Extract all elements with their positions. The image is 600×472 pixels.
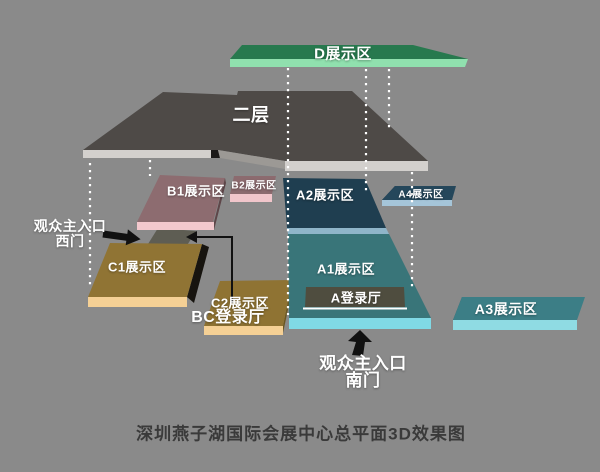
area-label-second-floor: 二层 [233, 101, 270, 127]
area-label-a3: A3展示区 [475, 299, 537, 319]
area-b1-front-edge [137, 222, 214, 230]
second-floor-right-front-edge [285, 161, 428, 171]
area-label-d: D展示区 [314, 43, 372, 64]
area-label-b1: B1展示区 [167, 181, 225, 200]
south-entrance-line1: 观众主入口 [319, 355, 407, 372]
area-a1-front-edge [289, 318, 431, 329]
area-a4-front-edge [382, 200, 452, 206]
west-entrance-line1: 观众主入口 [34, 219, 107, 234]
diagram-canvas: D展示区 二层 B1展示区 B2展示区 A2展示区 A4展示区 A1展示区 A登… [0, 0, 600, 472]
area-c2-front-edge [204, 326, 283, 335]
area-label-a-hall: A登录厅 [331, 288, 381, 307]
area-label-c1: C1展示区 [108, 257, 166, 276]
west-entrance-annotation: 观众主入口 西门 [34, 219, 107, 249]
area-label-b2: B2展示区 [231, 177, 276, 192]
area-a3-front-edge [453, 320, 577, 330]
area-b2-front-edge [230, 194, 272, 202]
west-entrance-arrow-icon [103, 229, 141, 245]
south-entrance-annotation: 观众主入口 南门 [319, 355, 407, 389]
area-a2-front-edge [287, 228, 389, 234]
south-entrance-arrow-icon [348, 330, 372, 356]
diagram-caption: 深圳燕子湖国际会展中心总平面3D效果图 [136, 420, 466, 445]
south-entrance-line2: 南门 [319, 372, 407, 389]
area-c1-front-edge [88, 297, 187, 307]
area-label-a2: A2展示区 [296, 185, 354, 204]
area-label-a4: A4展示区 [398, 186, 443, 201]
area-label-bc-hall: BC登录厅 [191, 303, 265, 327]
second-floor-left-front-edge [83, 150, 212, 158]
west-entrance-line2: 西门 [34, 234, 107, 249]
area-label-a1: A1展示区 [317, 259, 375, 278]
